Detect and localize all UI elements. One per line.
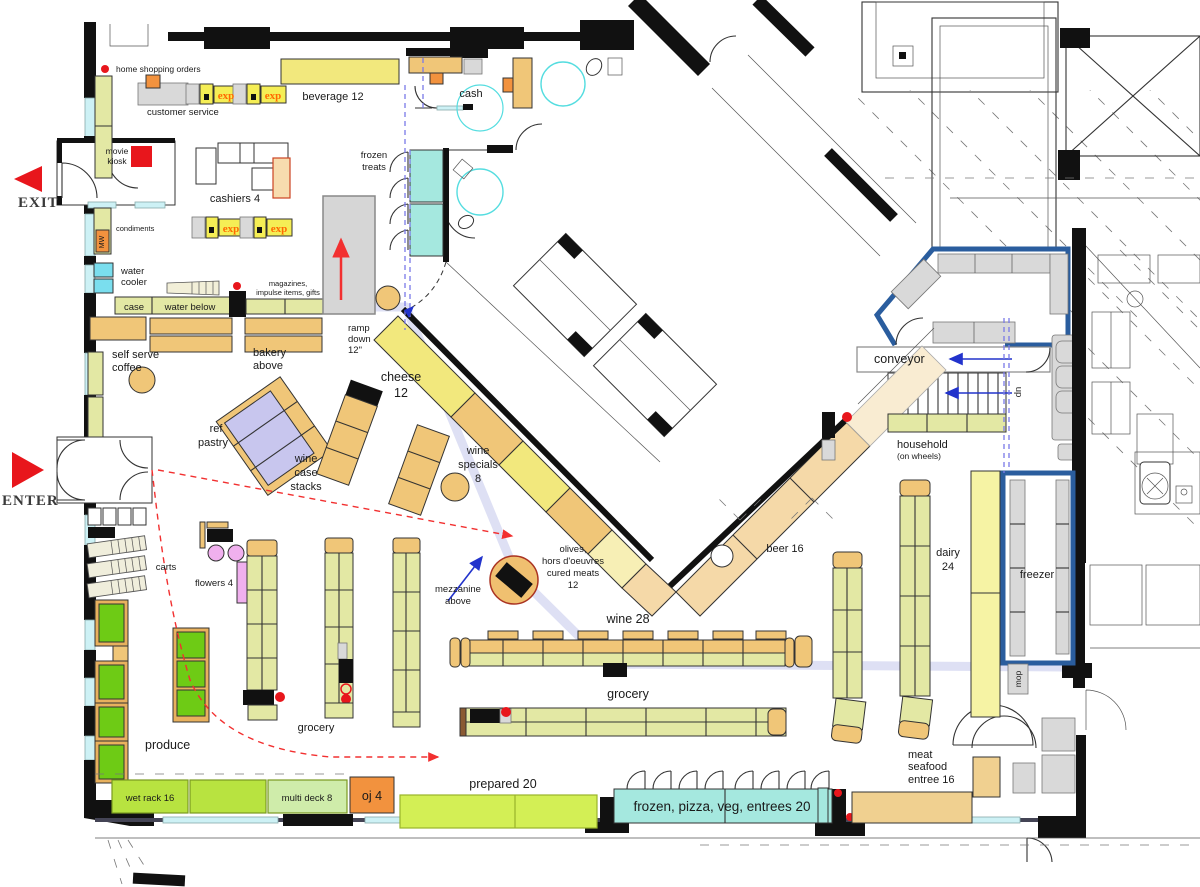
label-flowers: flowers 4 <box>195 578 233 589</box>
label-cashiers: cashiers 4 <box>210 193 260 205</box>
label-olives-3: cured meats <box>547 568 600 579</box>
label-mezzanine: mezzanine <box>435 584 481 595</box>
red-dot <box>101 65 109 73</box>
enter-vestibule <box>57 437 152 503</box>
label-cheese-12: 12 <box>394 386 408 400</box>
movie-kiosk-marker <box>131 146 152 167</box>
ramp <box>323 196 375 314</box>
label-wine-28: wine 28 <box>605 612 649 626</box>
label-magazines-2: impulse items, gifts <box>256 288 320 297</box>
label-conveyor: conveyor <box>874 352 925 366</box>
label-wine-case-1: wine <box>294 453 318 465</box>
label-freezer: freezer <box>1020 569 1055 581</box>
label-meat: meat <box>908 749 932 761</box>
label-produce: produce <box>145 738 190 752</box>
label-entree-16: entree 16 <box>908 774 954 786</box>
label-cash: cash <box>459 88 482 100</box>
label-household: household <box>897 439 948 451</box>
label-beverage: beverage 12 <box>302 91 363 103</box>
label-treats: treats <box>362 162 386 173</box>
label-bakery: bakery <box>253 347 287 359</box>
label-magazines-1: magazines, <box>269 279 307 288</box>
label-on-wheels: (on wheels) <box>897 451 941 461</box>
label-prepared: prepared 20 <box>469 777 536 791</box>
label-exp-4: exp <box>271 223 288 235</box>
dairy-wall-case <box>971 471 1000 717</box>
label-pastry: pastry <box>198 437 228 449</box>
label-water-below: water below <box>164 302 216 313</box>
label-up: up <box>1013 387 1024 398</box>
label-ref: ref <box>210 423 224 435</box>
floor-plan: home shopping orders customer service ex… <box>0 0 1200 887</box>
label-dairy: dairy <box>936 547 960 559</box>
label-beer: beer 16 <box>766 543 803 555</box>
label-coffee: coffee <box>112 362 142 374</box>
dairy-aisle-2 <box>898 480 933 740</box>
red-dot <box>275 692 285 702</box>
label-case: case <box>124 302 144 313</box>
label-oj: oj 4 <box>362 789 382 803</box>
label-grocery-aisles: grocery <box>298 722 335 734</box>
label-frozen-pizza: frozen, pizza, veg, entrees 20 <box>633 799 810 814</box>
label-wet-rack: wet rack 16 <box>125 793 175 804</box>
label-mezz-above: above <box>445 596 471 607</box>
grocery-run <box>460 707 786 736</box>
red-dot <box>834 789 842 797</box>
label-exp-2: exp <box>265 90 282 102</box>
label-condiments: condiments <box>116 224 155 233</box>
label-ramp-1: ramp <box>348 323 370 334</box>
red-dot <box>842 412 852 422</box>
beverage-shelf <box>281 59 399 84</box>
label-exit: EXIT <box>18 195 59 211</box>
label-exp-1: exp <box>218 90 235 102</box>
label-cheese: cheese <box>381 370 421 384</box>
label-mop: mop <box>1013 670 1023 687</box>
label-ramp-2: down <box>348 334 371 345</box>
label-wine-specials-2: specials <box>458 459 498 471</box>
label-cooler: cooler <box>121 277 147 288</box>
label-multi-deck: multi deck 8 <box>282 793 333 804</box>
label-customer-service: customer service <box>147 107 219 118</box>
label-ramp-3: 12" <box>348 345 362 356</box>
dairy-aisle-1 <box>831 552 866 744</box>
label-above: above <box>253 360 283 372</box>
label-dairy-24: 24 <box>942 561 954 573</box>
label-enter: ENTER <box>2 493 59 509</box>
label-home-shopping: home shopping orders <box>116 64 201 74</box>
label-kiosk: kiosk <box>107 156 127 166</box>
label-olives-2: hors d'oeuvres <box>542 556 604 567</box>
grocery-aisle-b <box>325 538 353 718</box>
label-wine-specials-3: 8 <box>475 473 481 485</box>
freezer-room <box>1003 473 1073 663</box>
label-movie: movie <box>106 146 129 156</box>
grocery-aisle-c <box>393 538 420 727</box>
label-wine-case-2: case <box>294 467 317 479</box>
label-wine-case-3: stacks <box>290 481 322 493</box>
label-mw: MW <box>99 235 106 248</box>
label-exp-3: exp <box>223 223 240 235</box>
produce-island <box>173 628 209 722</box>
wine-specials-barrel <box>441 473 469 501</box>
label-grocery-run: grocery <box>607 687 649 701</box>
red-dot <box>501 707 511 717</box>
label-water: water <box>120 266 144 277</box>
red-dot <box>233 282 241 290</box>
label-frozen: frozen <box>361 150 387 161</box>
prepared-counter <box>400 795 597 828</box>
label-olives-1: olives, <box>560 544 587 555</box>
background <box>0 0 1200 887</box>
label-seafood: seafood <box>908 761 947 773</box>
label-wine-specials-1: wine <box>466 445 490 457</box>
label-olives-4: 12 <box>568 580 579 591</box>
label-carts: carts <box>156 562 177 573</box>
label-self-serve: self serve <box>112 349 159 361</box>
